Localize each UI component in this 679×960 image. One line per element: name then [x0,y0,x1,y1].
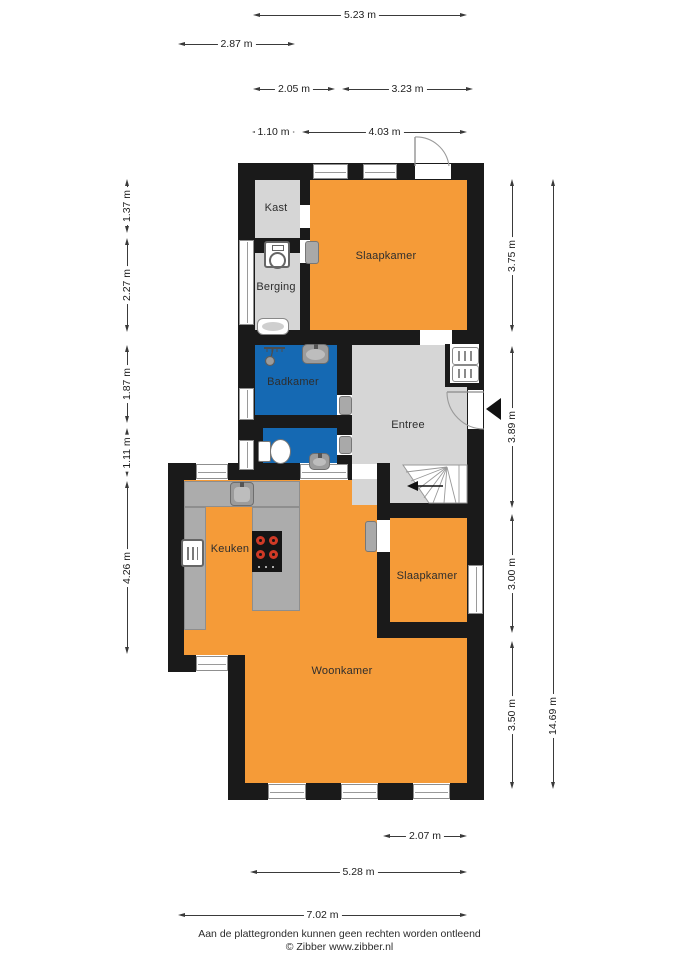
door-opening [377,520,390,552]
wall [377,480,390,520]
arrow-left-icon [342,87,349,91]
footer-credit: © Zibber www.zibber.nl [0,941,679,953]
window [313,164,348,179]
arrow-down-icon [125,226,129,233]
dim-label: 3.89 m [506,408,518,446]
arrow-right-icon [466,87,473,91]
arrow-up-icon [510,514,514,521]
arrow-left-icon [178,42,185,46]
wall [377,622,467,638]
oven-icon [181,539,204,567]
room-label-badkamer: Badkamer [267,376,319,388]
window [341,784,378,799]
arrow-left-icon [250,870,257,874]
doormat-icon [257,318,289,335]
wall [253,415,337,428]
dimension-5.23m: 5.23 m [253,8,467,22]
dimension-1.11m: 1.11 m [120,428,134,477]
washing-machine-icon [264,241,290,268]
window [468,565,483,614]
wall [228,783,268,800]
arrow-down-icon [551,782,555,789]
room-label-berging: Berging [256,281,295,293]
window [239,388,254,420]
window [363,164,397,179]
floorplan-canvas: KastBergingSlaapkamerBadkamerEntreeKeuke… [0,0,679,960]
meter-cupboard-icon [452,347,479,365]
wall [467,163,484,800]
kitchen-counter-left [184,507,206,630]
arrow-up-icon [510,346,514,353]
arrow-down-icon [125,416,129,423]
door-leaf [339,396,352,415]
arrow-up-icon [510,179,514,186]
dimension-3.50m: 3.50 m [505,641,519,789]
dim-label: 4.26 m [121,548,133,586]
arrow-down-icon [510,782,514,789]
dimension-4.03m: 4.03 m [302,125,467,139]
arrow-down-icon [510,501,514,508]
arrow-up-icon [125,179,129,186]
dim-label: 14.69 m [547,694,559,738]
dim-label: 3.23 m [388,83,426,95]
arrow-right-icon [460,13,467,17]
toilet-icon [270,439,291,464]
wall [377,552,390,622]
dimension-1.37m: 1.37 m [120,179,134,233]
room-label-woonkamer: Woonkamer [312,665,373,677]
cooktop-icon [252,531,282,572]
window [196,656,228,671]
arrow-right-icon [460,834,467,838]
dimension-1.10m: 1.10 m [252,125,295,139]
dimension-2.27m: 2.27 m [120,238,134,332]
wall [306,783,341,800]
arrow-right-icon [328,87,335,91]
door-opening [420,331,452,344]
arrow-right-icon [288,42,295,46]
room-label-kast: Kast [265,202,288,214]
dim-label: 1.37 m [121,187,133,225]
window [268,784,306,799]
arrow-down-icon [125,647,129,654]
arrow-up-icon [125,345,129,352]
dimension-2.07m: 2.07 m [383,829,467,843]
arrow-up-icon [125,238,129,245]
arrow-left-icon [253,13,260,17]
room-label-entree: Entree [391,419,425,431]
arrow-right-icon [460,913,467,917]
dim-label: 1.11 m [121,434,133,471]
window [239,440,254,470]
dimension-7.02m: 7.02 m [178,908,467,922]
meter-cupboard-icon [452,365,479,382]
wall [337,345,352,395]
dim-label: 1.10 m [254,126,292,138]
room-label-keuken: Keuken [211,543,250,555]
arrow-left-icon [383,834,390,838]
dim-label: 2.07 m [406,830,444,842]
dimension-1.87m: 1.87 m [120,345,134,423]
arrow-up-icon [510,641,514,648]
dim-label: 2.27 m [121,266,133,304]
window [196,464,228,479]
wall [300,178,310,207]
dim-label: 2.87 m [217,38,255,50]
wall [300,228,310,240]
entrance-arrow-icon [486,398,501,420]
front-door-opening [468,390,483,429]
arrow-left-icon [253,87,260,91]
dimension-3.00m: 3.00 m [505,514,519,633]
dim-label: 4.03 m [365,126,403,138]
wall [390,503,467,518]
wall [337,415,352,435]
door-leaf [365,521,377,552]
dimension-14.69m: 14.69 m [546,179,560,789]
wall [378,783,413,800]
door-opening [300,205,310,228]
dimension-2.05m: 2.05 m [253,82,335,96]
dim-label: 3.75 m [506,236,518,274]
wall [450,783,484,800]
room-label-slaapkamer-2: Slaapkamer [397,570,458,582]
wall [300,263,310,330]
dimension-4.26m: 4.26 m [120,481,134,654]
dim-label: 3.00 m [506,554,518,592]
arrow-right-icon [460,130,467,134]
arrow-up-icon [125,481,129,488]
door-leaf [305,241,319,264]
dim-label: 5.28 m [339,866,377,878]
wall [377,463,390,480]
footer-disclaimer: Aan de plattegronden kunnen geen rechten… [0,928,679,940]
room-label-slaapkamer-1: Slaapkamer [356,250,417,262]
arrow-right-icon [460,870,467,874]
dim-label: 2.05 m [275,83,313,95]
arrow-left-icon [302,130,309,134]
door-arc-icon [415,137,449,166]
door-opening [352,464,377,479]
wall [168,463,184,672]
door-leaf [339,436,352,454]
dim-label: 3.50 m [506,696,518,734]
dimension-2.87m: 2.87 m [178,37,295,51]
window [413,784,450,799]
arrow-left-icon [178,913,185,917]
front-door-opening-top [415,164,451,179]
sink-icon [302,344,329,364]
wall [228,655,245,800]
kitchen-sink-icon [230,482,254,506]
dimension-3.23m: 3.23 m [342,82,473,96]
dim-label: 1.87 m [121,365,133,403]
arrow-down-icon [125,325,129,332]
dim-label: 5.23 m [341,9,379,21]
arrow-up-icon [551,179,555,186]
dimension-5.28m: 5.28 m [250,865,467,879]
sink-icon [309,453,330,470]
dimension-3.89m: 3.89 m [505,346,519,508]
arrow-down-icon [510,626,514,633]
dimension-3.75m: 3.75 m [505,179,519,332]
dim-label: 7.02 m [303,909,341,921]
window [239,240,254,325]
arrow-down-icon [510,325,514,332]
